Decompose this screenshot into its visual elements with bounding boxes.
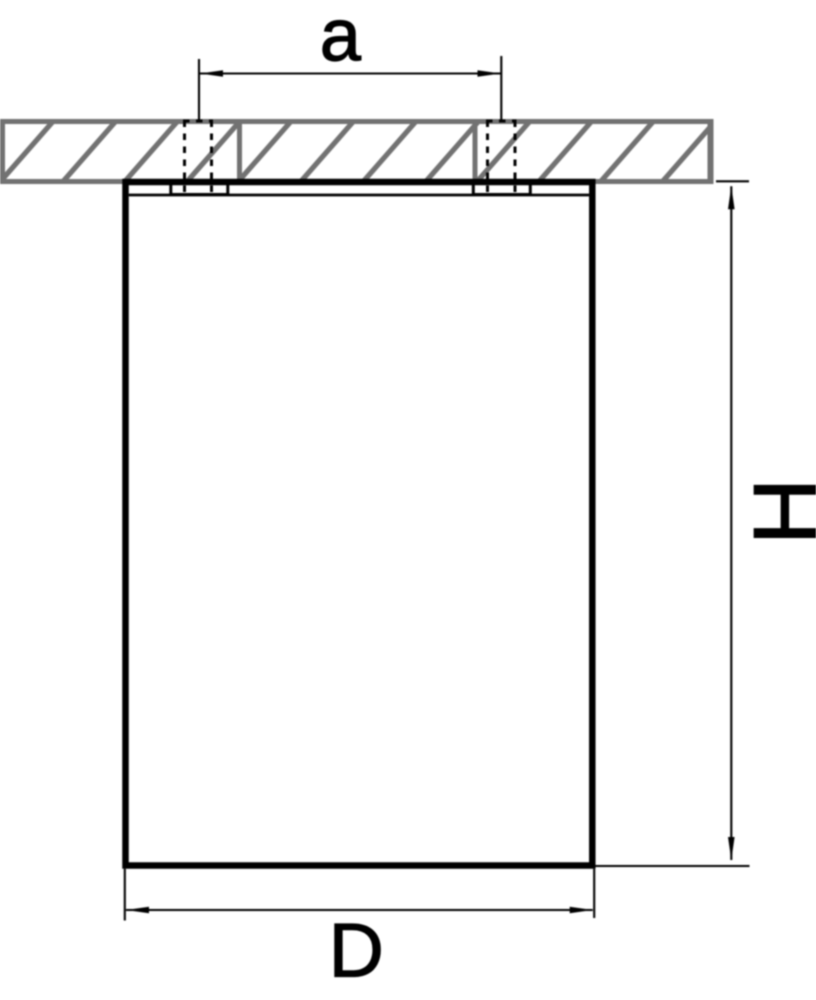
svg-text:a: a	[320, 0, 362, 77]
svg-text:D: D	[329, 908, 384, 993]
svg-text:H: H	[734, 478, 816, 545]
